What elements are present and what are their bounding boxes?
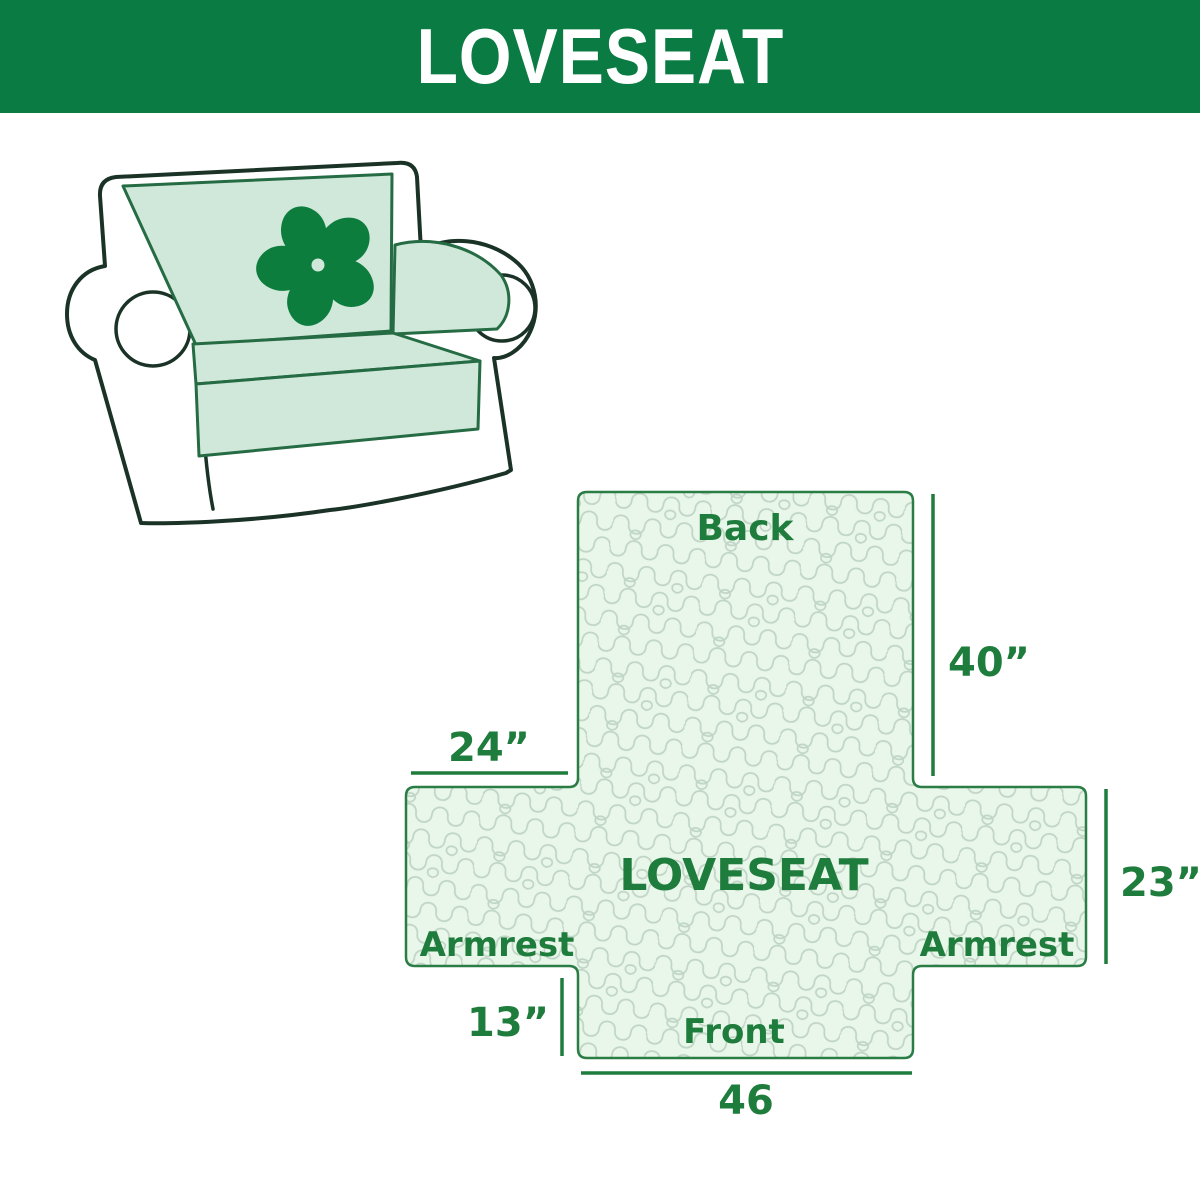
armrest-right-label: Armrest (920, 925, 1075, 965)
dim-front-width: 46 (718, 1078, 774, 1124)
dim-armrest-width: 24” (448, 725, 530, 771)
dim-front-drop: 13” (467, 1000, 549, 1046)
back-section-label: Back (696, 508, 794, 549)
center-product-label: LOVESEAT (619, 850, 868, 901)
dim-armrest-height: 23” (1120, 860, 1200, 906)
armrest-left-label: Armrest (420, 925, 575, 965)
header-banner: LOVESEAT (0, 0, 1200, 113)
page-title: LOVESEAT (416, 11, 784, 102)
infographic-page: LOVESEAT (0, 0, 1200, 1200)
cover-layout-diagram: Back LOVESEAT Armrest Armrest Front 40” … (380, 470, 1200, 1140)
cover-cross-shape (406, 492, 1086, 1058)
front-section-label: Front (683, 1012, 785, 1052)
dim-back-height: 40” (948, 640, 1030, 686)
